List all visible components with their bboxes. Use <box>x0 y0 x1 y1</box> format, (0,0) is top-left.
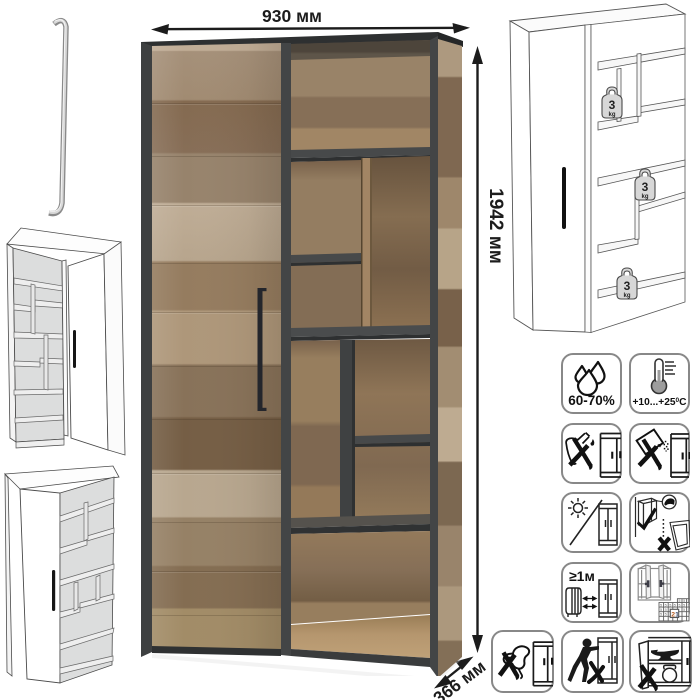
svg-text:5: 5 <box>665 613 667 617</box>
svg-text:5: 5 <box>688 608 690 612</box>
svg-text:kg: kg <box>641 194 648 200</box>
svg-text:kg: kg <box>623 293 630 299</box>
svg-text:930 мм: 930 мм <box>262 6 322 26</box>
svg-text:5: 5 <box>678 599 680 603</box>
svg-text:5: 5 <box>688 599 690 603</box>
svg-text:5: 5 <box>683 599 685 603</box>
svg-text:3: 3 <box>609 98 616 112</box>
svg-text:5: 5 <box>660 608 662 612</box>
svg-text:5: 5 <box>683 603 685 607</box>
svg-text:≥1м: ≥1м <box>569 568 595 584</box>
svg-text:60-70%: 60-70% <box>568 393 615 408</box>
svg-text:+10...+250C: +10...+250C <box>632 397 687 408</box>
svg-text:kg: kg <box>608 112 615 118</box>
svg-text:5: 5 <box>683 608 685 612</box>
svg-text:5: 5 <box>669 603 671 607</box>
svg-text:5: 5 <box>688 603 690 607</box>
svg-text:5: 5 <box>660 613 662 617</box>
svg-text:5: 5 <box>678 603 680 607</box>
svg-text:5: 5 <box>660 603 662 607</box>
svg-text:5: 5 <box>674 603 676 607</box>
svg-text:5: 5 <box>665 608 667 612</box>
svg-text:21: 21 <box>671 611 679 618</box>
svg-text:5: 5 <box>665 603 667 607</box>
svg-text:3: 3 <box>642 180 649 194</box>
svg-text:3: 3 <box>624 279 631 293</box>
